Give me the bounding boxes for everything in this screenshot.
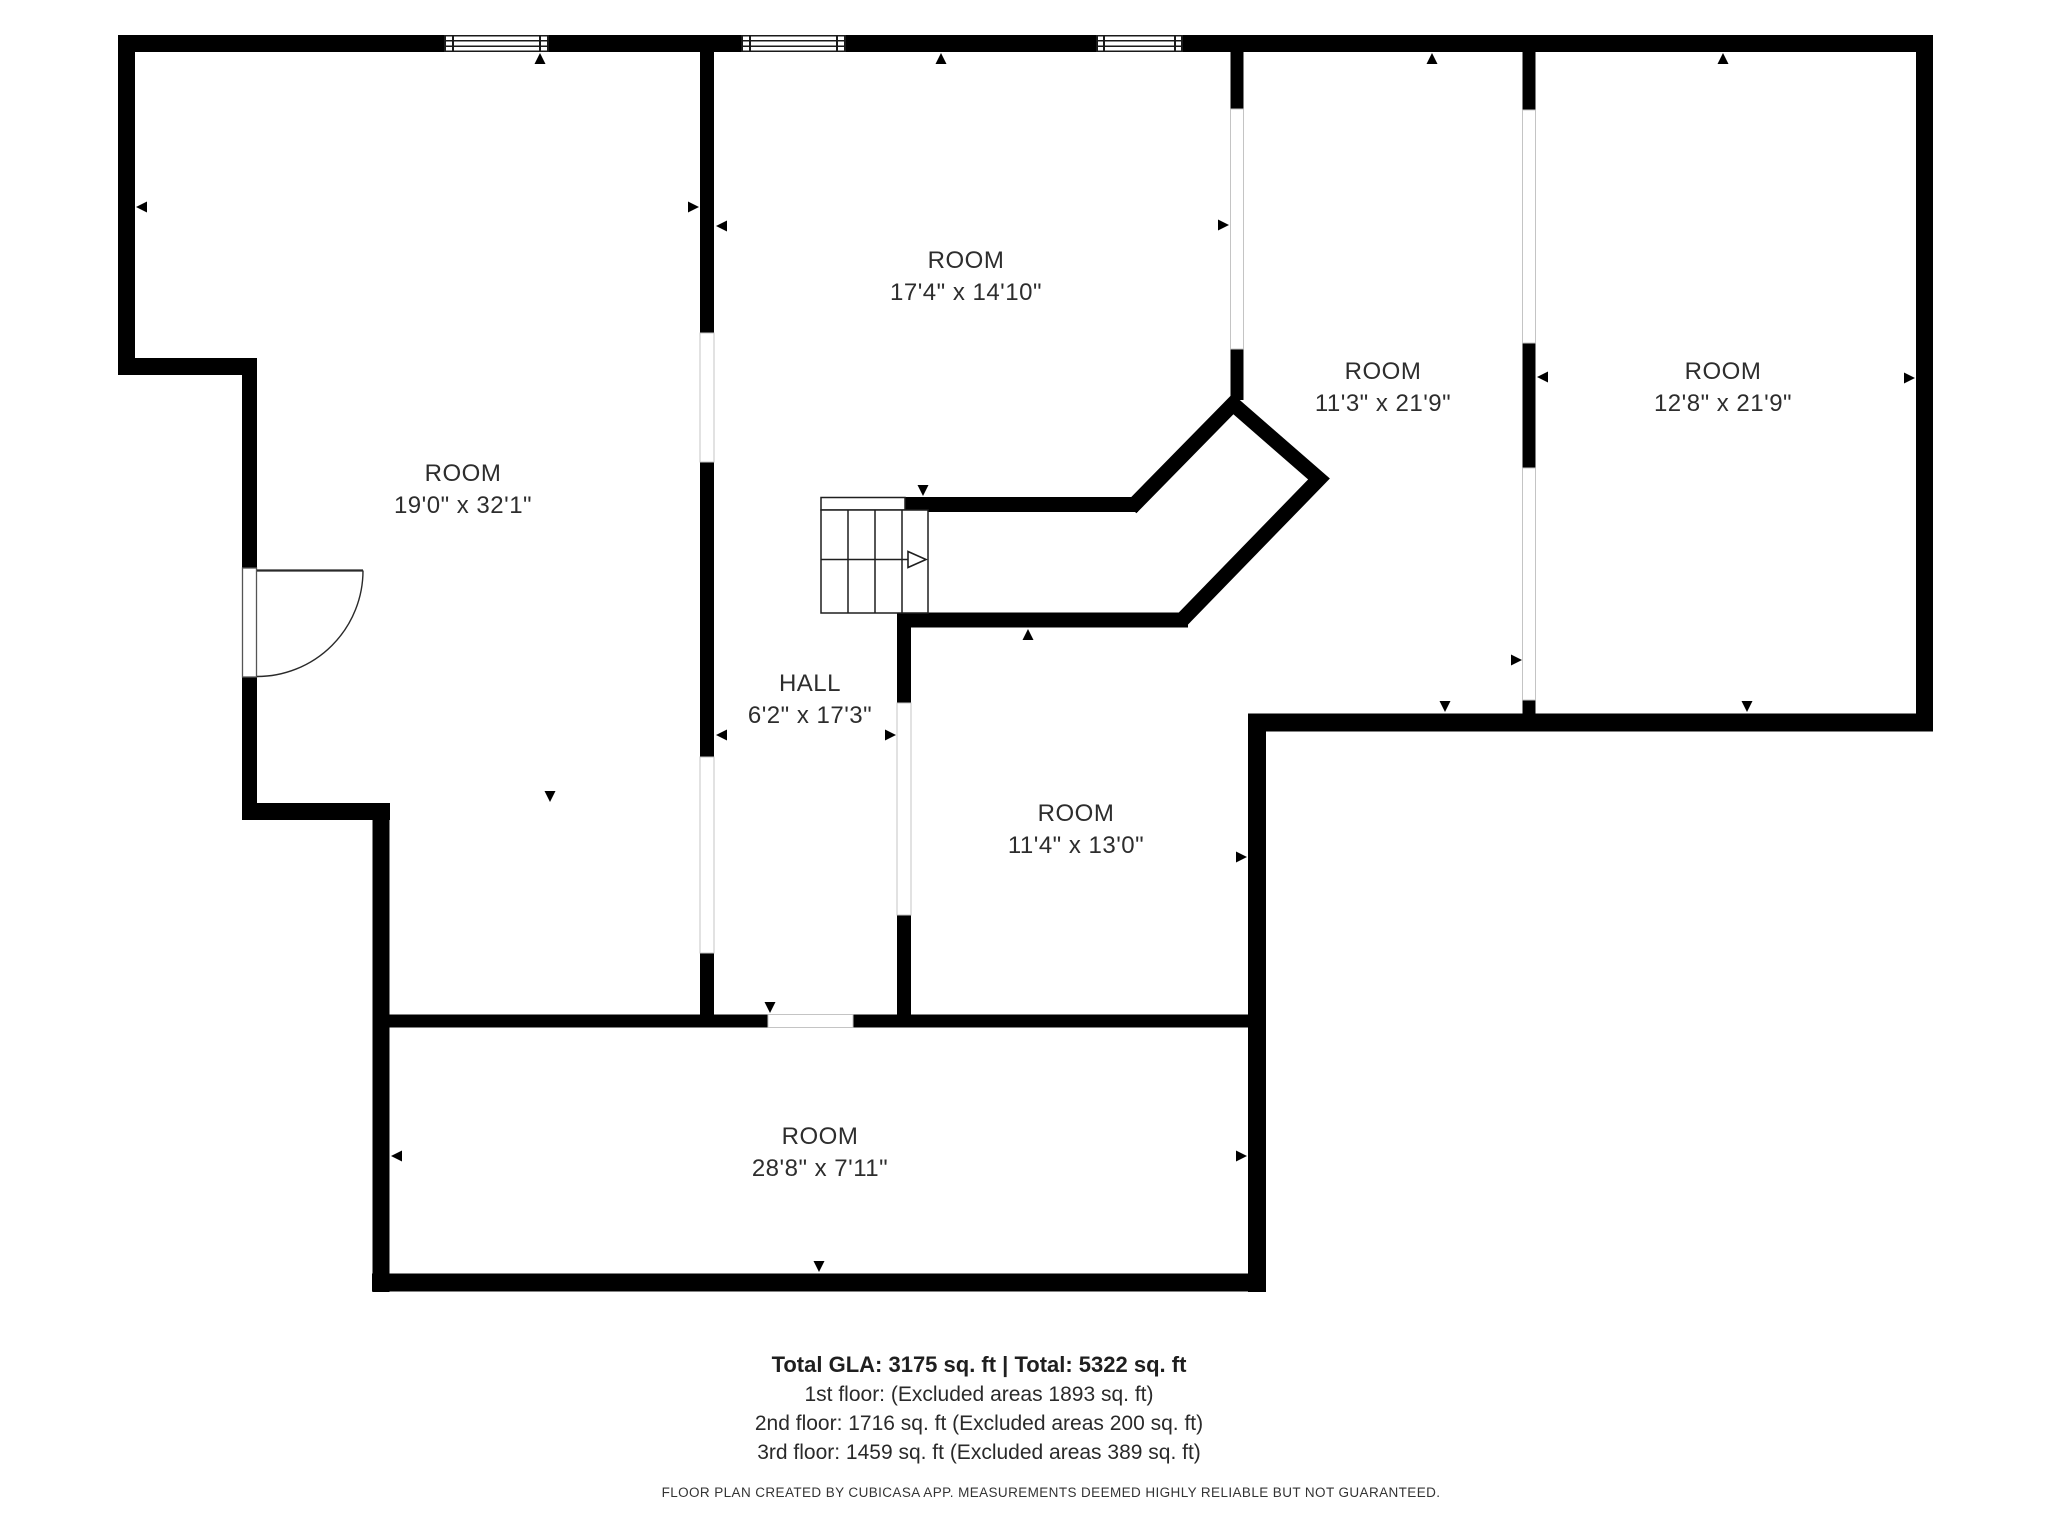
stairs-top-strip [821,498,905,511]
door-opening [243,568,257,677]
wall-stair-chevron [1131,404,1319,621]
dimension-arrow [1218,220,1229,231]
dimension-arrow [1236,852,1247,863]
dimension-arrow [716,730,727,741]
dimension-arrow [1236,1151,1247,1162]
room-left-name: ROOM [425,460,502,487]
stairs [821,498,928,614]
footer-floor3: 3rd floor: 1459 sq. ft (Excluded areas 3… [757,1441,1201,1464]
room-upper-right-inner-name: ROOM [1345,358,1422,385]
room-bottom-dims: 28'8" x 7'11" [752,1155,888,1182]
room-top-middle-name: ROOM [928,247,1005,274]
footer: Total GLA: 3175 sq. ft | Total: 5322 sq.… [662,1352,1441,1500]
footer-totals: Total GLA: 3175 sq. ft | Total: 5322 sq.… [772,1352,1188,1377]
dimension-arrow [688,202,699,213]
room-middle-name: ROOM [1038,800,1115,827]
window-top-2 [742,36,845,51]
opening-hall-left-upper [700,333,714,462]
dimension-arrow [545,791,556,802]
walls [118,35,1933,1292]
dimension-arrows [136,53,1915,1272]
room-upper-right-outer-dims: 12'8" x 21'9" [1654,390,1792,417]
door-swing-arc [257,571,363,677]
door-left-room [243,568,364,677]
floor-plan-page: ROOM 17'4" x 14'10" ROOM 11'3" x 21'9" R… [0,0,2048,1536]
hall-dims: 6'2" x 17'3" [748,702,872,729]
room-top-middle-dims: 17'4" x 14'10" [890,279,1042,306]
dimension-arrow [885,730,896,741]
dimension-arrow [1511,655,1522,666]
dimension-arrow [1537,372,1548,383]
room-left-dims: 19'0" x 32'1" [394,492,532,519]
walls-diagonal [1131,404,1319,621]
opening-right-divider-bot [1523,468,1536,700]
footer-floor2: 2nd floor: 1716 sq. ft (Excluded areas 2… [755,1412,1203,1435]
opening-mid-divider [1231,109,1244,349]
dimension-arrow [1440,701,1451,712]
opening-right-divider-top [1523,110,1536,343]
opening-hall-left-lower [700,757,714,953]
floor-plan-canvas: ROOM 17'4" x 14'10" ROOM 11'3" x 21'9" R… [0,0,2048,1536]
room-bottom-name: ROOM [782,1123,859,1150]
footer-disclaimer: FLOOR PLAN CREATED BY CUBICASA APP. MEAS… [662,1485,1441,1500]
dimension-arrow [814,1261,825,1272]
dimension-arrow [716,221,727,232]
dimension-arrow [1742,701,1753,712]
dimension-arrow [918,485,929,496]
dimension-arrow [535,53,546,64]
opening-bottomroom-top [768,1015,853,1028]
dimension-arrow [136,202,147,213]
hall-name: HALL [779,670,841,697]
dimension-arrow [1023,629,1034,640]
room-upper-right-inner-dims: 11'3" x 21'9" [1315,390,1451,417]
footer-floor1: 1st floor: (Excluded areas 1893 sq. ft) [804,1383,1153,1406]
window-top-3 [1097,36,1182,51]
opening-hall-right [897,703,911,915]
room-middle-dims: 11'4" x 13'0" [1008,832,1144,859]
dimension-arrow [391,1151,402,1162]
dimension-arrow [1427,53,1438,64]
room-upper-right-outer-name: ROOM [1685,358,1762,385]
dimension-arrow [1718,53,1729,64]
dimension-arrow [765,1002,776,1013]
dimension-arrow [1904,373,1915,384]
window-top-1 [445,36,548,51]
dimension-arrow [936,53,947,64]
